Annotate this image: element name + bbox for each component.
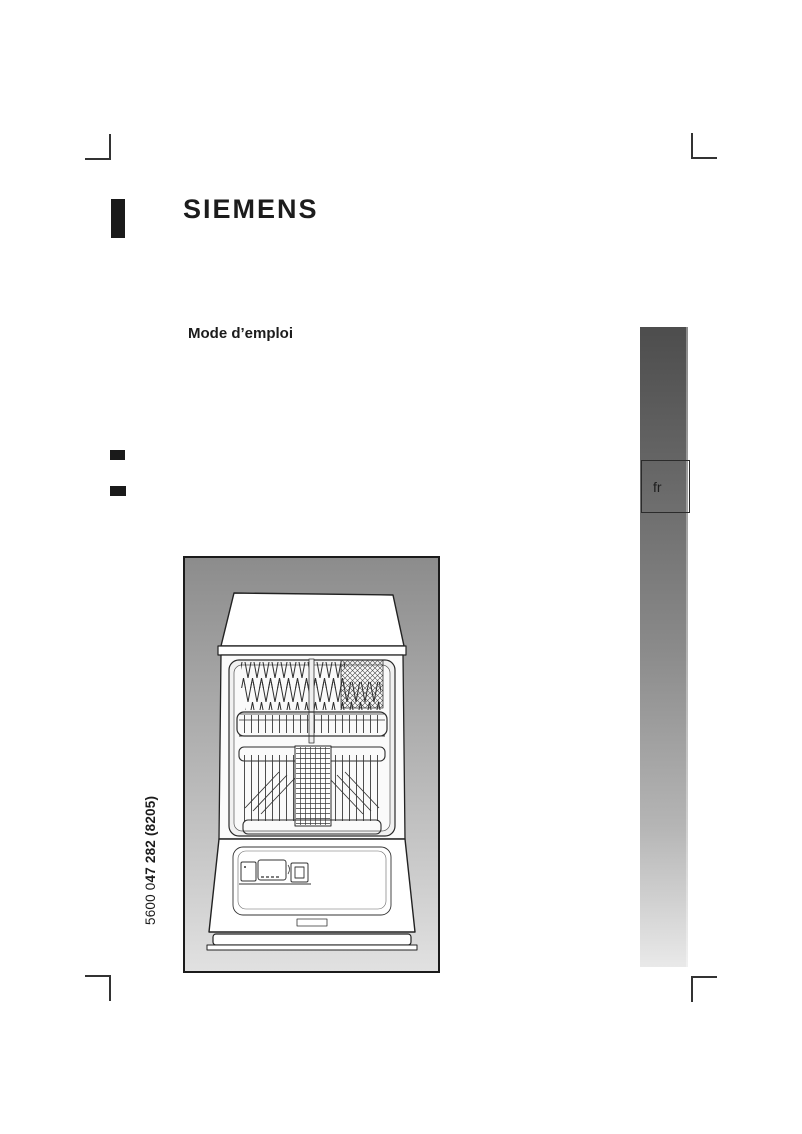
worktop [221, 593, 404, 646]
language-index-bar: fr [640, 327, 688, 967]
illustration-frame [183, 556, 440, 973]
dishwasher-drawing [207, 593, 417, 950]
registration-bar [111, 199, 125, 238]
worktop-front-edge [218, 646, 406, 655]
cover-title: Mode d’emploi [188, 325, 293, 342]
detergent-dispenser [239, 860, 311, 884]
registration-square-2 [110, 486, 126, 496]
crop-mark-top-right [691, 133, 717, 159]
base-plate [207, 945, 417, 950]
document-number-main: 47 282 (8205) [143, 796, 158, 883]
document-number: 5600 047 282 (8205) [143, 796, 158, 925]
plinth [213, 934, 411, 945]
registration-square-1 [110, 450, 125, 460]
open-door [209, 839, 415, 932]
language-tab-label: fr [653, 479, 662, 495]
language-tab-fr: fr [641, 460, 690, 513]
lower-basket [239, 746, 385, 834]
crop-mark-bottom-left [85, 975, 111, 1001]
brand-logo: SIEMENS [183, 194, 319, 225]
crop-mark-bottom-right [691, 976, 717, 1002]
dishwasher-illustration [185, 558, 438, 971]
upper-basket [237, 659, 387, 743]
crop-mark-top-left [85, 134, 111, 160]
manual-cover-page: SIEMENS Mode d’emploi 5600 047 282 (8205… [0, 0, 802, 1134]
document-number-prefix: 5600 0 [143, 883, 158, 926]
